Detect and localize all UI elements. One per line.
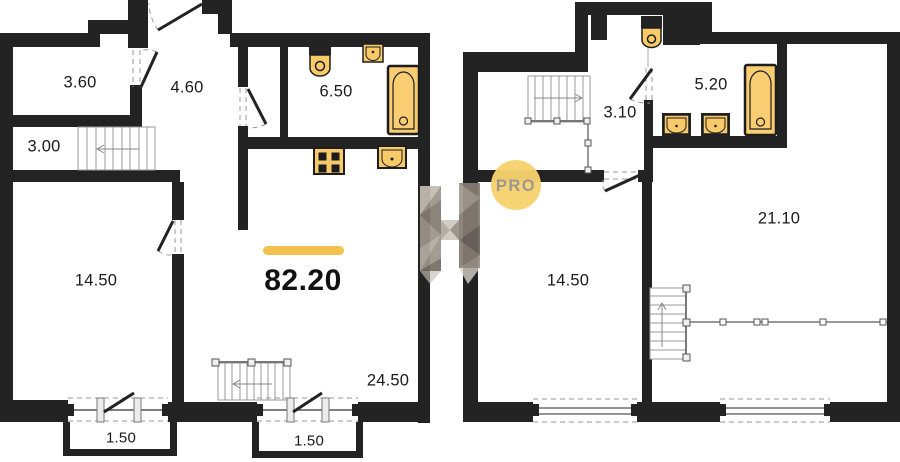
plan-shape (257, 404, 263, 416)
h-logo-watermark (420, 183, 480, 284)
plan-shape (887, 32, 900, 422)
room-label-room-f2: 14.50 (547, 272, 589, 291)
plan-shape (280, 47, 288, 139)
plan-shape (683, 285, 690, 292)
plan-shape (0, 33, 100, 47)
door-closet (240, 88, 266, 128)
plan-shape (134, 398, 141, 422)
plan-shape (212, 359, 219, 366)
plan-shape (319, 165, 327, 173)
plan-shape (284, 359, 291, 366)
sink-icon-floor2-left (662, 113, 691, 139)
plan-shape (714, 125, 717, 128)
plan-shape (158, 251, 174, 255)
bathtub-icon-floor2 (745, 65, 776, 135)
plan-shape (358, 402, 430, 422)
plan-shape (525, 118, 531, 124)
plan-shape (238, 126, 248, 230)
plan-shape (168, 402, 257, 422)
pro-badge-label: PRO (496, 177, 536, 195)
plan-shape (130, 85, 142, 127)
plan-shape (310, 55, 330, 76)
room-label-corridor: 4.60 (171, 79, 204, 98)
plan-shape (158, 4, 202, 30)
door-hall-floor2 (602, 172, 640, 191)
plan-shape (128, 0, 148, 48)
plan-shape (287, 398, 294, 422)
plan-shape (675, 125, 678, 128)
plan-shape (202, 0, 232, 14)
bathtub-icon-floor1 (388, 66, 419, 134)
room-label-entry-hall: 3.60 (64, 74, 97, 93)
room-label-room-f1: 14.50 (75, 272, 117, 291)
sink-icon-floor2-right (701, 113, 730, 139)
total-area-label: 82.20 (264, 264, 342, 298)
plan-shape (0, 400, 68, 422)
plan-shape (13, 115, 140, 127)
plan-shape (630, 69, 652, 99)
plan-shape (88, 20, 130, 34)
total-area-underline (263, 246, 344, 255)
plan-shape (332, 153, 340, 161)
loft-railing (689, 319, 887, 325)
plan-shape (141, 50, 157, 52)
room-label-bathroom-f1: 6.50 (320, 83, 353, 102)
plan-shape (463, 52, 588, 72)
plan-shape (591, 15, 607, 40)
room-label-stair-hall: 3.00 (28, 138, 61, 157)
stairs-floor2-upper (525, 76, 591, 173)
plan-shape (824, 404, 830, 416)
plan-shape (172, 254, 184, 402)
floor-plan-drawing: PRO (0, 0, 900, 462)
stairs-floor2-lower (650, 285, 690, 361)
plan-shape (352, 404, 358, 416)
plan-shape (309, 44, 331, 55)
plan-shape (141, 52, 157, 87)
toilet-icon-floor1 (309, 44, 331, 76)
door-room360 (133, 50, 157, 87)
plan-shape (68, 404, 74, 416)
plan-shape (158, 221, 173, 251)
plan-shape (332, 165, 340, 173)
kitchen-sink-icon (378, 146, 406, 168)
plan-shape (683, 319, 690, 326)
plan-shape (642, 28, 661, 48)
pro-badge-watermark: PRO (491, 160, 541, 210)
toilet-icon-floor2 (641, 16, 662, 48)
plan-shape (554, 118, 560, 124)
stove-icon (314, 148, 344, 174)
plan-shape (391, 158, 394, 161)
plan-shape (585, 167, 591, 173)
plan-shape (97, 398, 104, 422)
plan-shape (700, 32, 900, 44)
plan-shape (465, 402, 533, 422)
plan-shape (663, 15, 700, 45)
plan-shape (683, 354, 690, 361)
window-floor2-right (720, 399, 830, 422)
plan-shape (238, 47, 248, 87)
plan-shape (585, 140, 591, 146)
room-label-living-f2: 21.10 (758, 210, 800, 229)
plan-shape (641, 16, 662, 28)
plan-shape (830, 402, 900, 422)
plan-shape (149, 3, 158, 30)
room-label-bathroom-f2: 5.20 (695, 76, 728, 95)
plan-shape (372, 51, 375, 54)
plan-shape (820, 319, 826, 325)
plan-shape (248, 89, 266, 124)
balcony-label-left: 1.50 (106, 430, 136, 447)
plan-shape (762, 319, 768, 325)
plan-shape (644, 100, 653, 182)
sink-icon-floor1 (363, 44, 383, 62)
balcony-label-right: 1.50 (294, 433, 324, 450)
plan-shape (720, 404, 726, 416)
floor-plan-canvas: PRO 3.60 4.60 6.50 3.00 14.50 24.50 1.50… (0, 0, 900, 462)
plan-shape (104, 393, 134, 412)
plan-shape (172, 182, 184, 220)
plan-shape (252, 451, 363, 458)
door-bathroom-floor2 (630, 68, 652, 103)
plan-shape (777, 44, 787, 148)
plan-shape (293, 393, 322, 412)
plan-shape (584, 118, 590, 124)
plan-shape (605, 175, 640, 191)
plan-shape (319, 153, 327, 161)
plan-shape (631, 404, 637, 416)
door-room1450 (158, 220, 181, 255)
plan-shape (248, 124, 266, 128)
balcony-door-left (68, 393, 168, 422)
plan-shape (575, 2, 712, 15)
window-floor2-left (533, 399, 637, 422)
plan-shape (754, 319, 760, 325)
entrance-door (149, 3, 202, 30)
plan-shape (880, 319, 886, 325)
plan-shape (720, 319, 726, 325)
plan-shape (533, 404, 539, 416)
plan-shape (322, 398, 329, 422)
room-label-hall-f2: 3.10 (604, 104, 637, 123)
plan-shape (248, 359, 255, 366)
room-label-living-kitchen: 24.50 (367, 372, 409, 391)
plan-shape (162, 404, 168, 416)
plan-shape (218, 14, 232, 34)
plan-shape (0, 33, 13, 422)
plan-shape (637, 402, 720, 422)
stairs-floor1-lower (212, 359, 291, 400)
plan-shape (63, 449, 177, 456)
plan-shape (0, 170, 180, 182)
stairs-floor1-upper (78, 127, 155, 170)
